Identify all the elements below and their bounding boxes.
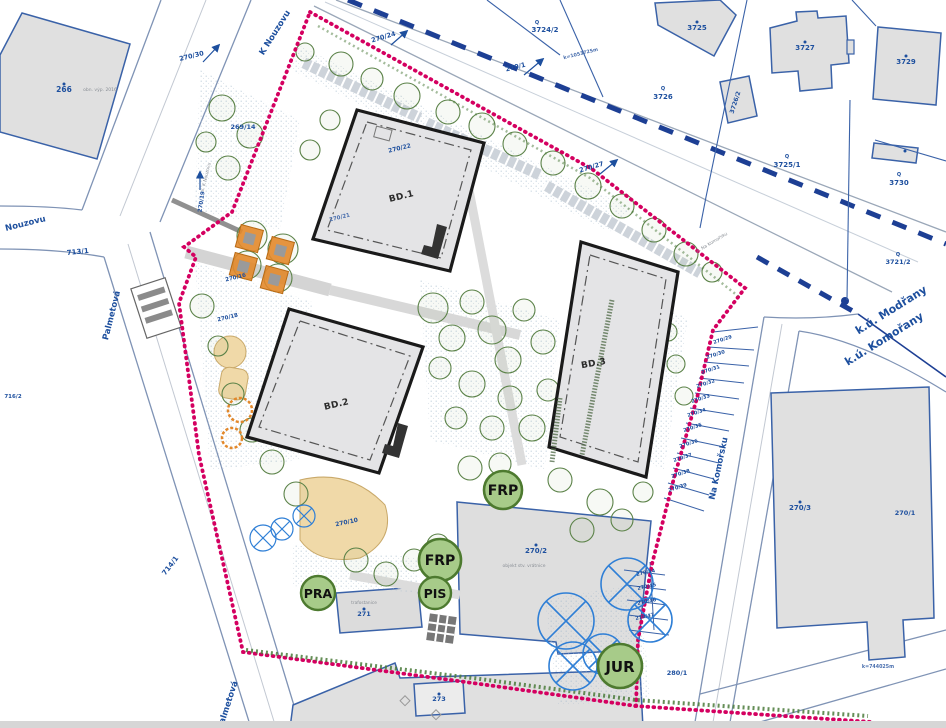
strip-label-4: 270/33	[691, 393, 712, 405]
parcel-label-270-3: 270/3	[789, 504, 811, 512]
note-vratnice: objekt stv. vrátnice	[502, 562, 545, 569]
trafostanice-shape	[336, 587, 422, 633]
badge-pra[interactable]: PRA	[301, 576, 335, 610]
parcel-label-3727: 3727	[795, 44, 815, 52]
parcel-label-266: 266	[56, 85, 72, 94]
strip-label-7: 270/36	[679, 438, 700, 450]
parcel-3729-shape	[873, 27, 941, 105]
note-k1: k=1053725m	[563, 47, 599, 61]
badge-frp-2[interactable]: FRP	[419, 539, 461, 581]
street-label-palmetova: Palmetová	[101, 290, 123, 342]
note-k2: k=744025m	[862, 664, 894, 670]
parcel-270-3-shape	[771, 387, 934, 660]
strip-label-3: 270/32	[696, 378, 717, 390]
parcel-label-3724-2: 3724/2	[532, 26, 559, 34]
badge-pis-label: PIS	[424, 586, 447, 601]
badge-pis[interactable]: PIS	[419, 577, 451, 609]
strip-label-5: 270/34	[687, 407, 708, 419]
parcel-label-3725: 3725	[687, 24, 707, 32]
site-plan-viewport: 266 obn. výp. 2016 270/30 269/14 K Nouzo…	[0, 0, 946, 728]
badge-pra-label: PRA	[304, 586, 333, 601]
parcel-label-273: 273	[432, 695, 446, 703]
strip-label-8: 270/37	[673, 452, 694, 464]
parcel-label-716-2: 716/2	[4, 394, 21, 400]
parcel-label-270-1-right: 270/1	[895, 509, 916, 517]
parcel-label-3725-1: 3725/1	[774, 161, 801, 169]
badge-jur-label: JUR	[604, 658, 635, 676]
street-label-nouzovu: Nouzovu	[4, 214, 47, 234]
parcel-label-269-14: 269/14	[231, 123, 256, 131]
strip-label-6: 270/35	[683, 422, 704, 434]
window-bottom-edge	[0, 721, 946, 728]
street-label-ul-na-komorsku: ul. Na Komořsku	[694, 230, 729, 255]
note-trafostanice: trafostanice	[351, 600, 377, 606]
parcel-label-3730: 3730	[889, 179, 909, 187]
parcel-label-713-1: 713/1	[66, 247, 89, 257]
strip-label-0: 270/29	[713, 334, 734, 346]
parcel-label-3726: 3726	[653, 93, 673, 101]
note-obn: obn. výp. 2016	[83, 86, 117, 93]
parcel-label-3721-2: 3721/2	[886, 258, 911, 266]
parcel-label-714-1: 714/1	[160, 555, 180, 577]
parcel-label-270-24: 270/24	[370, 30, 397, 45]
parcel-symbol-3726: Q	[661, 86, 665, 92]
badge-jur[interactable]: JUR	[598, 644, 642, 688]
parcel-label-280-1: 280/1	[667, 669, 688, 677]
badge-frp-2-label: FRP	[425, 553, 456, 569]
strip-label-1: 270/30	[706, 349, 727, 361]
badge-frp-1[interactable]: FRP	[484, 471, 522, 509]
parcel-symbol-3725-1: Q	[785, 154, 789, 160]
strip-label-9: 270/38	[671, 468, 692, 480]
parcel-symbol-3730: Q	[897, 172, 901, 178]
badge-frp-1-label: FRP	[488, 483, 519, 499]
street-label-k-nouzovu: K Nouzovu	[258, 9, 293, 57]
site-plan-canvas: 266 obn. výp. 2016 270/30 269/14 K Nouzo…	[0, 0, 946, 728]
parcel-label-270-30: 270/30	[178, 49, 205, 63]
street-label-palmetova-bottom: Palmetová	[216, 680, 241, 728]
parcel-label-3729: 3729	[896, 58, 916, 66]
parcel-label-271: 271	[357, 610, 371, 618]
parcel-label-270-2: 270/2	[525, 547, 547, 555]
street-label-na-komorsku: Na Komořsku	[708, 436, 731, 500]
